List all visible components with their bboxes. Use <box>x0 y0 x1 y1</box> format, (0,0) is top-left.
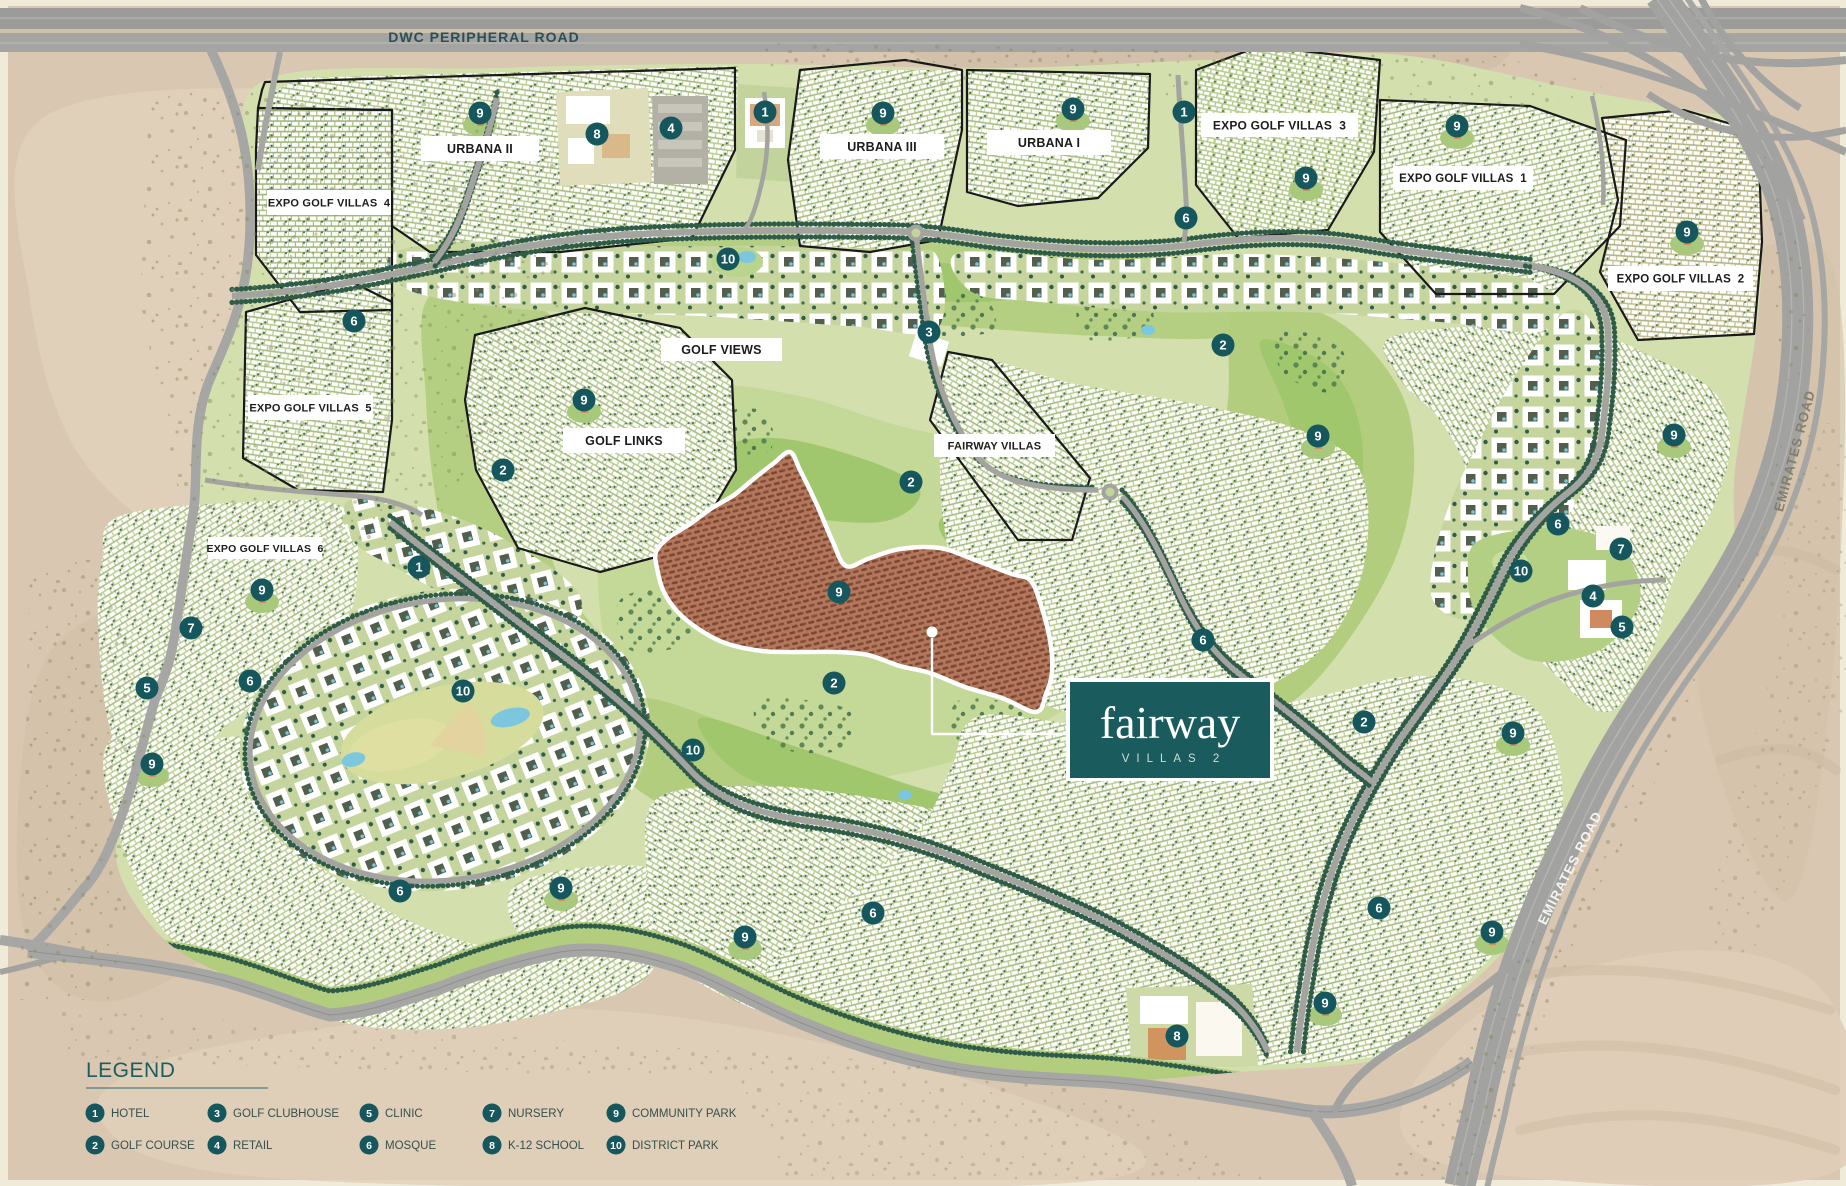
svg-text:EXPO GOLF VILLAS 5: EXPO GOLF VILLAS 5 <box>249 403 371 415</box>
svg-text:9: 9 <box>1314 429 1321 444</box>
svg-text:6: 6 <box>1182 211 1189 226</box>
svg-text:8: 8 <box>593 127 600 142</box>
svg-text:5: 5 <box>1618 620 1625 635</box>
svg-text:9: 9 <box>1509 726 1516 741</box>
svg-text:CLINIC: CLINIC <box>385 1108 423 1120</box>
svg-text:1: 1 <box>761 105 768 120</box>
svg-text:8: 8 <box>489 1140 495 1152</box>
svg-text:DISTRICT PARK: DISTRICT PARK <box>632 1140 719 1152</box>
svg-text:1: 1 <box>92 1108 98 1120</box>
svg-text:EXPO GOLF VILLAS 3: EXPO GOLF VILLAS 3 <box>1213 118 1346 132</box>
svg-text:6: 6 <box>246 674 253 689</box>
svg-text:10: 10 <box>721 252 735 267</box>
svg-text:URBANA III: URBANA III <box>847 140 917 154</box>
svg-text:6: 6 <box>1199 633 1206 648</box>
svg-text:9: 9 <box>1670 428 1677 443</box>
svg-text:10: 10 <box>686 743 700 758</box>
svg-text:K-12 SCHOOL: K-12 SCHOOL <box>508 1140 585 1152</box>
svg-text:9: 9 <box>741 930 748 945</box>
svg-text:6: 6 <box>396 884 403 899</box>
svg-text:2: 2 <box>830 676 837 691</box>
svg-text:2: 2 <box>1219 338 1226 353</box>
svg-text:EXPO GOLF VILLAS 2: EXPO GOLF VILLAS 2 <box>1617 274 1745 286</box>
svg-text:GOLF CLUBHOUSE: GOLF CLUBHOUSE <box>233 1108 339 1120</box>
svg-text:9: 9 <box>1488 925 1495 940</box>
svg-text:6: 6 <box>350 314 357 329</box>
svg-text:7: 7 <box>489 1108 495 1120</box>
svg-text:1: 1 <box>1180 105 1187 120</box>
svg-text:VILLAS 2: VILLAS 2 <box>1122 753 1227 765</box>
svg-text:9: 9 <box>1453 119 1460 134</box>
svg-text:2: 2 <box>1360 715 1367 730</box>
svg-text:4: 4 <box>667 121 675 136</box>
svg-text:6: 6 <box>869 906 876 921</box>
svg-text:9: 9 <box>1069 102 1076 117</box>
svg-text:9: 9 <box>1321 996 1328 1011</box>
svg-text:GOLF LINKS: GOLF LINKS <box>585 434 663 448</box>
svg-text:9: 9 <box>580 393 587 408</box>
svg-text:9: 9 <box>148 757 155 772</box>
svg-text:2: 2 <box>92 1140 98 1152</box>
svg-text:EXPO GOLF VILLAS 6: EXPO GOLF VILLAS 6 <box>207 543 324 555</box>
svg-text:GOLF VIEWS: GOLF VIEWS <box>681 343 761 357</box>
svg-text:3: 3 <box>925 325 932 340</box>
svg-text:COMMUNITY PARK: COMMUNITY PARK <box>632 1108 737 1120</box>
svg-text:9: 9 <box>613 1108 619 1120</box>
svg-text:6: 6 <box>1554 517 1561 532</box>
svg-text:5: 5 <box>366 1108 372 1120</box>
svg-text:NURSERY: NURSERY <box>508 1108 564 1120</box>
svg-text:6: 6 <box>366 1140 372 1152</box>
svg-text:6: 6 <box>1375 901 1382 916</box>
svg-text:GOLF COURSE: GOLF COURSE <box>111 1140 195 1152</box>
svg-text:4: 4 <box>214 1140 220 1152</box>
svg-text:8: 8 <box>1173 1029 1180 1044</box>
svg-text:9: 9 <box>1683 225 1690 240</box>
svg-text:EXPO GOLF VILLAS 4: EXPO GOLF VILLAS 4 <box>268 198 391 210</box>
svg-text:4: 4 <box>1589 589 1597 604</box>
svg-text:2: 2 <box>907 475 914 490</box>
svg-text:5: 5 <box>143 681 150 696</box>
svg-text:10: 10 <box>610 1140 622 1152</box>
svg-text:9: 9 <box>879 106 886 121</box>
svg-text:URBANA I: URBANA I <box>1018 136 1080 150</box>
svg-text:7: 7 <box>187 621 194 636</box>
svg-text:HOTEL: HOTEL <box>111 1108 150 1120</box>
svg-text:MOSQUE: MOSQUE <box>385 1140 436 1152</box>
svg-text:9: 9 <box>258 583 265 598</box>
svg-text:DWC PERIPHERAL ROAD: DWC PERIPHERAL ROAD <box>388 29 579 45</box>
svg-text:FAIRWAY VILLAS: FAIRWAY VILLAS <box>948 441 1042 453</box>
svg-text:URBANA II: URBANA II <box>447 142 513 156</box>
svg-text:EXPO GOLF VILLAS 1: EXPO GOLF VILLAS 1 <box>1399 173 1527 185</box>
svg-text:9: 9 <box>557 881 564 896</box>
svg-text:fairway: fairway <box>1100 697 1240 748</box>
svg-text:LEGEND: LEGEND <box>86 1059 175 1082</box>
svg-text:10: 10 <box>1514 564 1528 579</box>
svg-text:RETAIL: RETAIL <box>233 1140 273 1152</box>
svg-text:1: 1 <box>415 560 422 575</box>
svg-text:10: 10 <box>456 684 470 699</box>
svg-text:3: 3 <box>214 1108 220 1120</box>
svg-text:9: 9 <box>835 585 842 600</box>
svg-text:2: 2 <box>499 463 506 478</box>
svg-text:9: 9 <box>1302 171 1309 186</box>
svg-text:7: 7 <box>1617 542 1624 557</box>
svg-text:9: 9 <box>476 106 483 121</box>
